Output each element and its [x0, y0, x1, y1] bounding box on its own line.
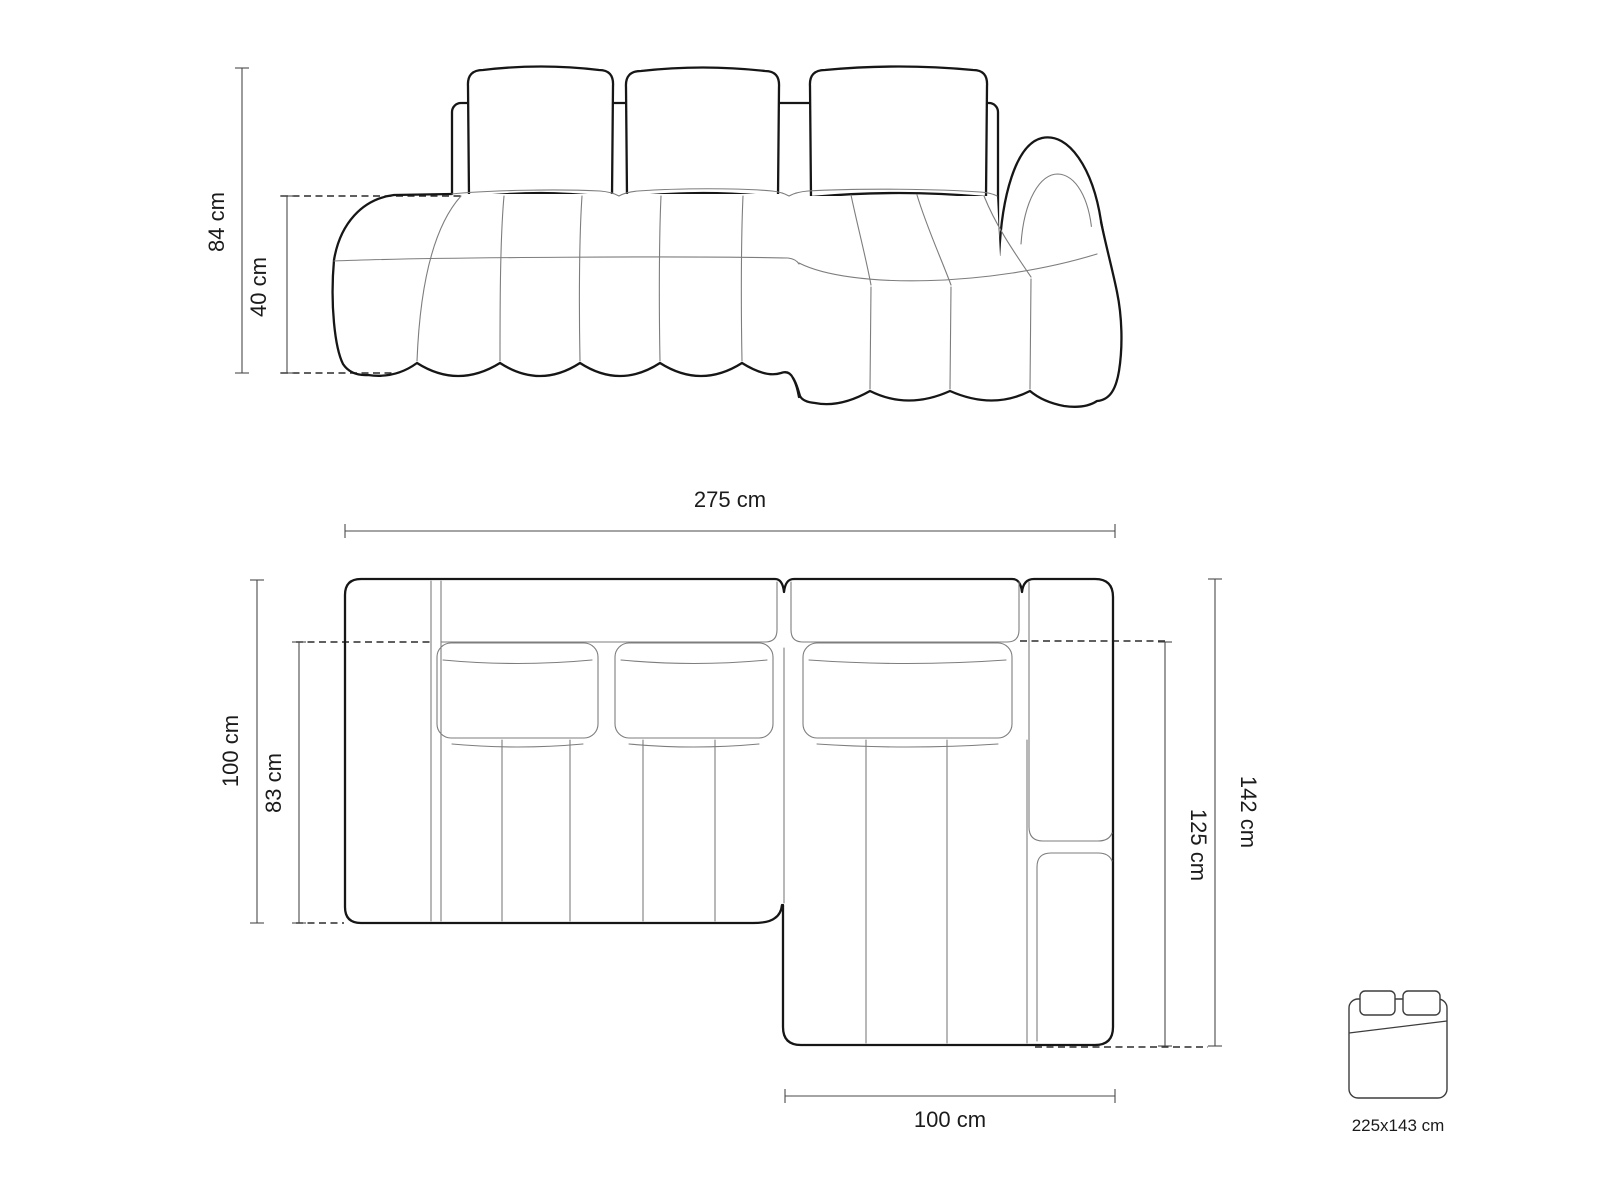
plan-channel-seams [502, 648, 1027, 1043]
dim-seat-height: 40 cm [246, 196, 294, 373]
front-pillow-left [468, 67, 613, 198]
plan-cushion-left [437, 643, 598, 747]
front-pillow-right [810, 67, 987, 198]
bed-icon [1349, 991, 1447, 1098]
sleeping-area: 225x143 cm [1349, 991, 1447, 1135]
dim-left-depth-label: 100 cm [218, 715, 243, 787]
dim-chaise-depth: 125 cm [1158, 642, 1211, 1046]
plan-view: 275 cm 100 cm 83 cm 142 cm 125 c [218, 487, 1261, 1132]
dim-chaise-depth-label: 125 cm [1186, 809, 1211, 881]
plan-outline [345, 579, 1113, 1045]
dim-seat-depth-label: 83 cm [261, 753, 286, 813]
plan-cushion-middle [615, 643, 773, 747]
dim-total-width-label: 275 cm [694, 487, 766, 512]
dim-seat-height-label: 40 cm [246, 257, 271, 317]
dim-chaise-width: 100 cm [785, 1089, 1115, 1132]
front-body-fill [333, 194, 790, 376]
dim-total-width: 275 cm [345, 487, 1115, 538]
plan-backrest-left [441, 582, 777, 642]
plan-side-panel [431, 581, 441, 921]
dim-left-depth: 100 cm [218, 580, 264, 923]
dim-total-height-label: 84 cm [204, 192, 229, 252]
dim-right-depth-label: 142 cm [1236, 776, 1261, 848]
dim-total-height: 84 cm [204, 68, 249, 373]
diagram-svg: 84 cm 40 cm [0, 0, 1600, 1200]
sofa-dimension-diagram: 84 cm 40 cm [0, 0, 1600, 1200]
dim-seat-depth: 83 cm [261, 642, 306, 923]
plan-backrest-right [791, 582, 1019, 642]
front-pillow-middle [626, 68, 779, 198]
sleeping-size-label: 225x143 cm [1352, 1116, 1445, 1135]
front-view: 84 cm 40 cm [204, 67, 1121, 407]
dim-right-depth: 142 cm [1208, 579, 1261, 1046]
plan-armrest-upper [1029, 582, 1112, 841]
dim-chaise-width-label: 100 cm [914, 1107, 986, 1132]
plan-cushion-chaise [803, 643, 1012, 747]
plan-armrest-lower [1037, 853, 1112, 1041]
